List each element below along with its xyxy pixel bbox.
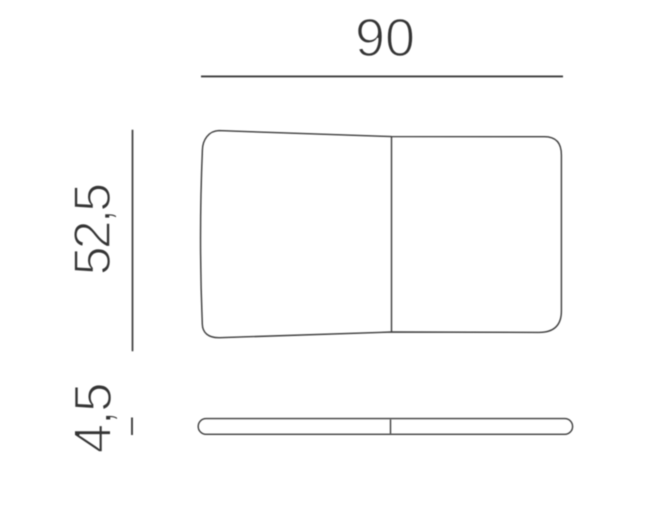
svg-text:52,5: 52,5 bbox=[64, 185, 122, 276]
svg-text:4,5: 4,5 bbox=[64, 384, 123, 453]
svg-text:90: 90 bbox=[355, 8, 415, 68]
